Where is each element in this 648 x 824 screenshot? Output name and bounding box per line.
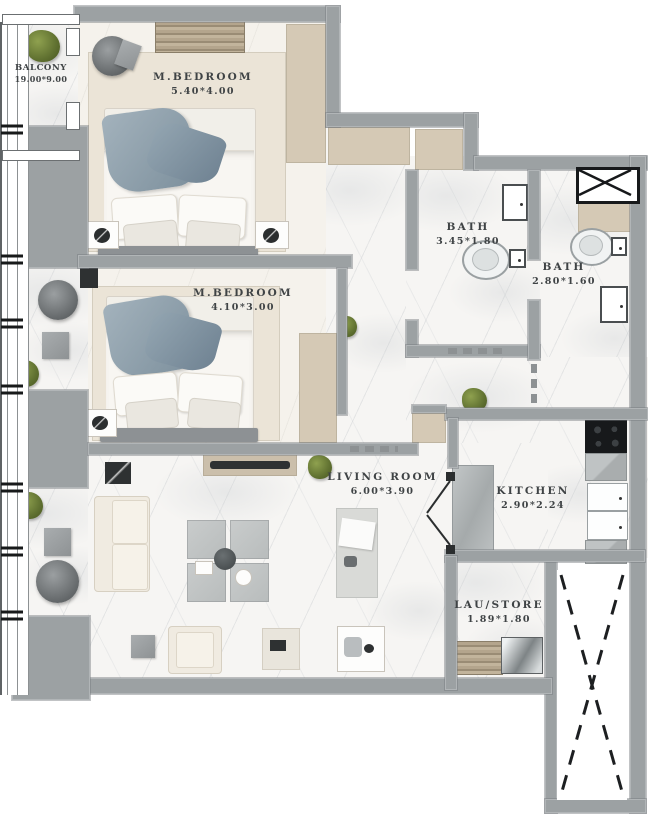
coffee-table-icon	[230, 563, 269, 602]
wall	[74, 6, 340, 22]
balcony-door	[66, 28, 80, 56]
plant-icon	[308, 455, 332, 479]
wall-speaker-icon	[105, 462, 131, 484]
bed-headboard	[100, 428, 258, 442]
decor-plate-icon	[236, 570, 251, 585]
plant-icon	[26, 30, 60, 62]
washer-icon	[455, 642, 502, 674]
chaise-throw	[338, 518, 376, 550]
balcony-table-icon	[36, 560, 79, 603]
toilet-bowl	[472, 248, 499, 271]
wardrobe-bedroom1	[286, 24, 326, 163]
wall	[406, 170, 418, 270]
coffee-table-icon	[230, 520, 269, 559]
accessory-box	[509, 249, 526, 268]
shower-icon	[600, 286, 628, 323]
bath-cabinet	[502, 184, 528, 221]
wall-cap	[412, 405, 446, 413]
service-shaft	[557, 570, 627, 800]
accessory-box	[611, 237, 627, 256]
wall	[630, 156, 646, 813]
balcony-table-icon	[38, 280, 78, 320]
bench-item	[270, 640, 286, 651]
lamp-icon	[92, 416, 108, 430]
sink-icon	[587, 511, 628, 540]
wall	[545, 799, 646, 813]
balcony-window-bottom	[2, 150, 80, 161]
dryer-icon	[502, 638, 542, 673]
kitchen-cabinet	[585, 453, 627, 481]
side-table-icon	[131, 635, 155, 658]
window-mullion	[7, 22, 8, 695]
wall	[445, 408, 648, 420]
toilet-bowl	[579, 235, 603, 256]
duct-shaft	[576, 167, 640, 204]
lamp-icon	[94, 228, 110, 243]
wall	[528, 300, 540, 360]
wall	[88, 678, 552, 694]
chaise-pillow	[344, 556, 357, 567]
lamp-icon	[263, 228, 279, 243]
hallway-closet	[328, 127, 410, 165]
balcony-table-icon	[42, 332, 69, 359]
decor-book-icon	[196, 562, 212, 574]
floor-plan: BALCONY 19.00*9.00 M.BEDROOM 5.40*4.00 M…	[0, 0, 648, 824]
desk-item	[364, 644, 374, 653]
wall	[88, 443, 418, 455]
balcony-door	[66, 102, 80, 130]
hallway-closet-2	[415, 129, 463, 170]
sink-icon	[587, 483, 628, 511]
sofa-cushion	[112, 544, 148, 590]
dresser-bedroom1	[156, 22, 244, 52]
wall	[78, 255, 352, 268]
wall	[445, 556, 457, 690]
window-strip-left	[0, 22, 29, 695]
balcony-window-top	[2, 14, 80, 25]
wall	[406, 345, 540, 357]
decor-bowl-icon	[214, 548, 236, 570]
closet-corner	[412, 413, 446, 443]
wall	[448, 418, 458, 468]
desk-chair-icon	[344, 637, 362, 657]
balcony-table-icon	[44, 528, 71, 556]
cooktop-icon	[585, 420, 627, 453]
armchair-cushion	[176, 632, 214, 668]
soundbar-icon	[210, 461, 290, 469]
wall	[326, 113, 478, 127]
wall-unit-icon	[80, 268, 98, 288]
window-mullion	[17, 22, 18, 695]
wall	[326, 6, 340, 127]
wall	[445, 550, 645, 562]
wall	[528, 170, 540, 260]
wall	[337, 268, 347, 415]
kitchen-column	[453, 466, 493, 552]
wardrobe-bedroom2	[299, 333, 337, 443]
sofa-cushion	[112, 500, 148, 544]
